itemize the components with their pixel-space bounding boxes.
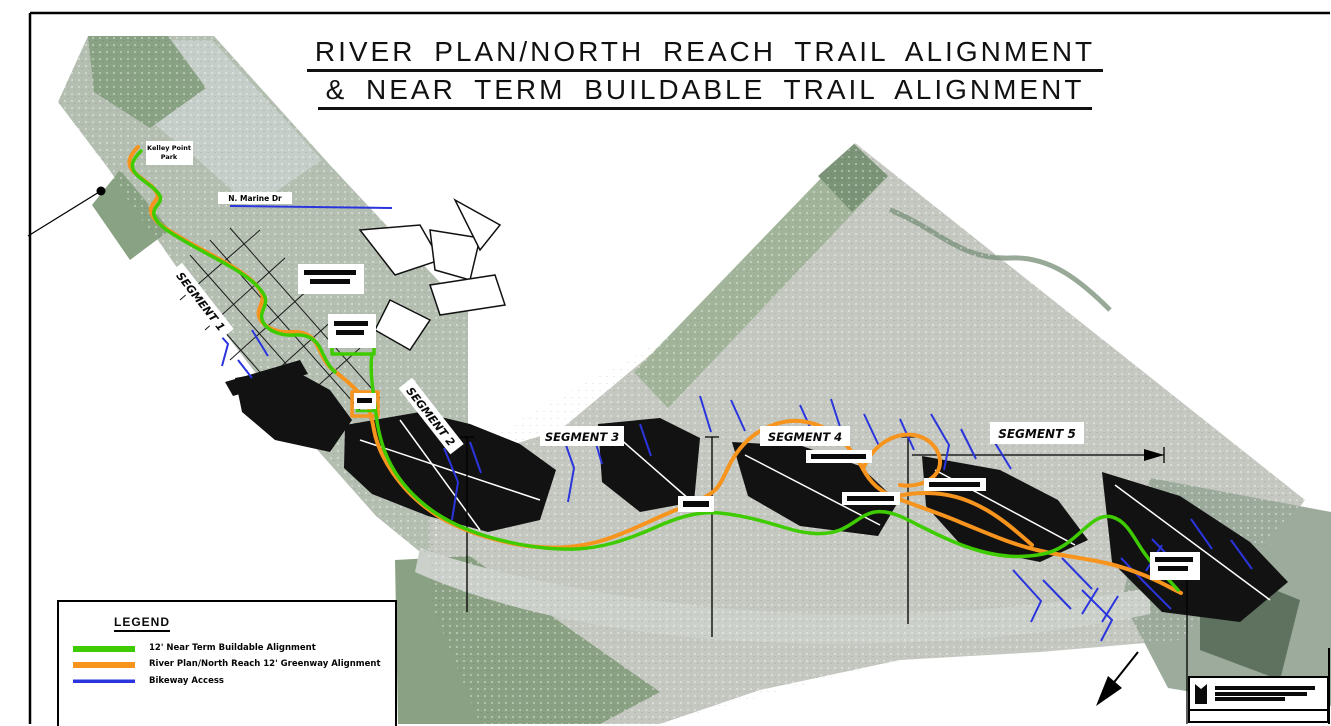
bikeway-swatch [73, 678, 135, 684]
illegible-place-label [842, 492, 900, 505]
title-line-1: RIVER PLAN/NORTH REACH TRAIL ALIGNMENT [307, 36, 1103, 72]
building-outline [430, 275, 505, 315]
illegible-place-label [1150, 552, 1200, 580]
building-outline [430, 230, 480, 280]
north-arrow-icon [1096, 652, 1138, 706]
legend-label: Bikeway Access [149, 677, 395, 686]
illegible-place-label [354, 393, 376, 409]
segment-label-3: SEGMENT 3 [540, 426, 624, 446]
title-line-2: & NEAR TERM BUILDABLE TRAIL ALIGNMENT [318, 74, 1093, 110]
segment-label-5: SEGMENT 5 [990, 422, 1084, 444]
place-label-kelley-point-park: Kelley Point Park [146, 141, 193, 165]
label-text: N. Marine Dr [228, 194, 282, 203]
legend-row-greenway: River Plan/North Reach 12' Greenway Alig… [73, 660, 395, 669]
label-text: Kelley Point [147, 144, 191, 152]
agency-logo-icon [1194, 683, 1209, 705]
illegible-place-label [678, 496, 714, 512]
greenway-swatch [73, 662, 135, 668]
illegible-place-label [328, 314, 376, 348]
legend: LEGEND 12' Near Term Buildable Alignment… [57, 600, 397, 726]
frame-right-line [1328, 648, 1330, 724]
near-term-swatch [73, 646, 135, 652]
segment1-boundary-dot [97, 187, 106, 196]
title-block-lower-cell [1190, 711, 1327, 721]
illegible-place-label [924, 478, 986, 491]
legend-label: River Plan/North Reach 12' Greenway Alig… [149, 660, 395, 669]
label-text: SEGMENT 5 [998, 427, 1076, 441]
legend-row-near-term: 12' Near Term Buildable Alignment [73, 644, 395, 653]
title-block [1188, 676, 1329, 723]
legend-row-bikeway: Bikeway Access [73, 677, 395, 686]
page-title: RIVER PLAN/NORTH REACH TRAIL ALIGNMENT &… [280, 36, 1130, 110]
illegible-place-label [806, 450, 872, 463]
segment-label-4: SEGMENT 4 [760, 426, 850, 446]
label-text: SEGMENT 4 [768, 430, 842, 444]
illegible-place-label [298, 264, 364, 294]
title-block-text-smudge [1215, 685, 1323, 703]
label-text: Park [161, 153, 178, 161]
place-label-n-marine-dr: N. Marine Dr [218, 192, 292, 204]
segment1-boundary-line [28, 189, 104, 236]
legend-title: LEGEND [114, 615, 170, 632]
label-text: SEGMENT 3 [545, 430, 619, 444]
legend-label: 12' Near Term Buildable Alignment [149, 644, 395, 653]
title-block-main-cell [1190, 678, 1327, 711]
north-arrow-head [1096, 676, 1122, 706]
